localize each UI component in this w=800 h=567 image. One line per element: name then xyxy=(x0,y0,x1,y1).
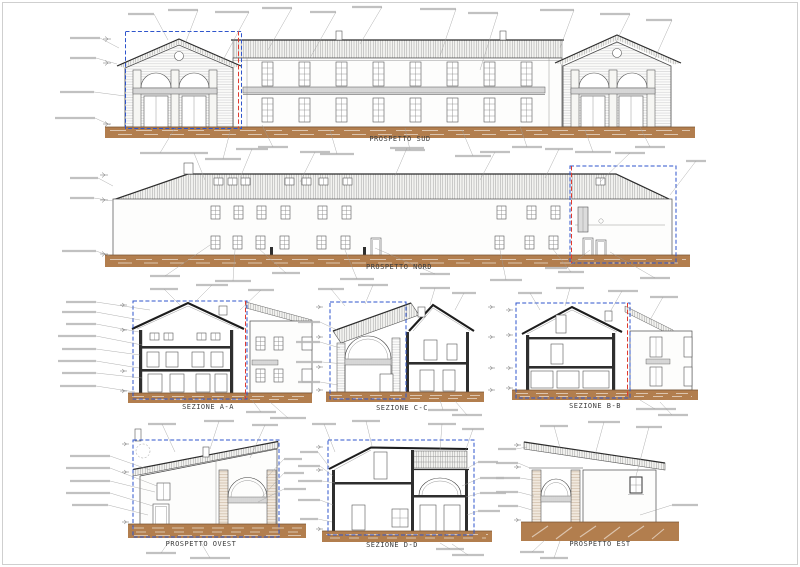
sezione-a-a-title: SEZIONE A-A xyxy=(182,403,234,411)
oculus-window xyxy=(613,49,622,58)
prospetto-ovest-title: PROSPETTO OVEST xyxy=(166,540,237,548)
prospetto-nord-title: PROSPETTO NORD xyxy=(366,263,432,271)
ground-strip-cc xyxy=(326,392,484,402)
south-right-pavilion xyxy=(555,35,681,127)
chimney xyxy=(135,429,141,441)
chimney xyxy=(203,447,209,457)
drawing-sheet: PROSPETTO SUD xyxy=(0,0,800,567)
ground-strip-est xyxy=(521,522,679,541)
chimney xyxy=(336,31,342,40)
sezione-a-a-drawing: SEZIONE A-A xyxy=(58,285,312,418)
sezione-c-c-title: SEZIONE C-C xyxy=(376,404,428,412)
oculus-window xyxy=(175,52,184,61)
prospetto-sud-drawing: PROSPETTO SUD xyxy=(55,7,695,159)
chimney xyxy=(219,306,227,315)
sezione-d-d-title: SEZIONE D-D xyxy=(366,541,418,549)
ground-strip-aa xyxy=(128,393,312,403)
sezione-c-c-drawing: SEZIONE C-C xyxy=(296,285,495,415)
prospetto-nord-drawing: PROSPETTO NORD xyxy=(62,148,706,281)
chimney xyxy=(418,307,425,317)
chimney xyxy=(184,163,193,174)
balcony-band xyxy=(243,87,545,93)
sezione-b-b-drawing: SEZIONE B-B xyxy=(506,288,698,415)
north-roof xyxy=(113,174,669,200)
prospetto-est-title: PROSPETTO EST xyxy=(569,540,631,548)
chimney xyxy=(500,31,506,40)
sheet-canvas: PROSPETTO SUD xyxy=(0,0,800,567)
chimney xyxy=(605,311,612,321)
prospetto-est-drawing: PROSPETTO EST xyxy=(496,422,698,558)
prospetto-sud-title: PROSPETTO SUD xyxy=(369,135,430,143)
south-roof-band xyxy=(233,40,562,58)
sezione-b-b-title: SEZIONE B-B xyxy=(569,402,621,410)
prospetto-ovest-drawing: PROSPETTO OVEST xyxy=(66,421,306,558)
east-wall xyxy=(583,470,656,523)
sezione-d-d-drawing: SEZIONE D-D xyxy=(298,421,506,555)
south-left-pavilion xyxy=(117,39,241,127)
